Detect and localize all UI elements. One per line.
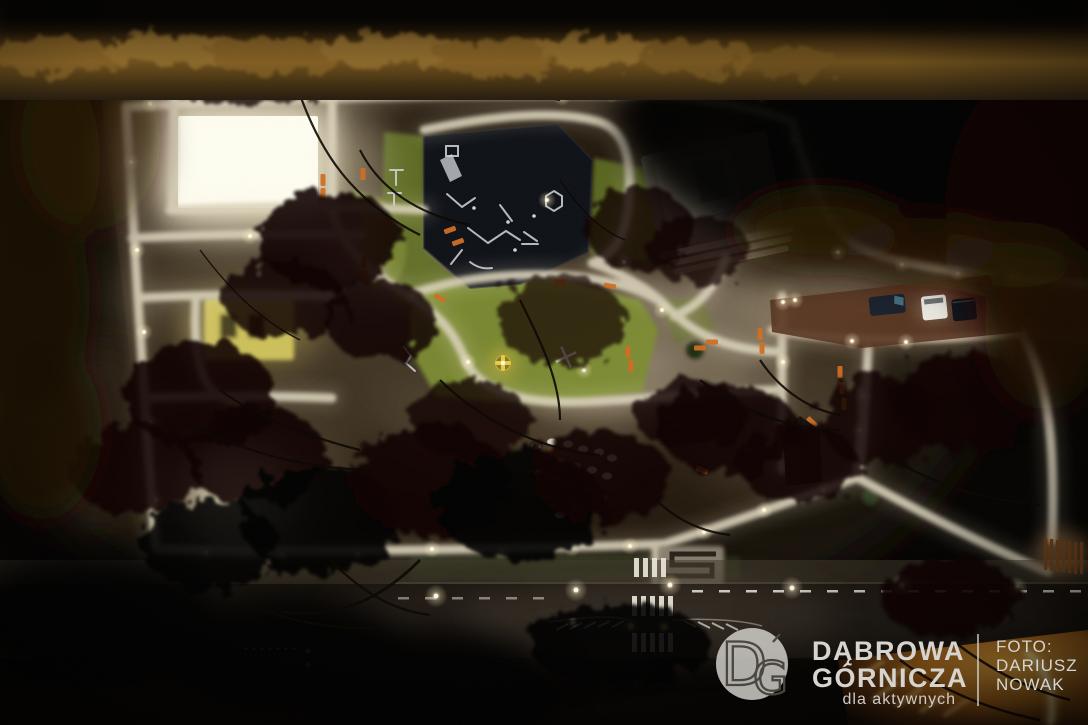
park-aerial-photo: D G DĄBROWA GÓRNICZA dla aktywnych FOTO:… [0, 0, 1088, 725]
watermark-credit-name1: DARIUSZ [996, 656, 1078, 675]
vignette [0, 0, 1088, 725]
watermark-brand-line1: DĄBROWA [812, 636, 965, 666]
watermark-brand-line2: GÓRNICZA [812, 662, 968, 693]
aerial-photo: D G DĄBROWA GÓRNICZA dla aktywnych FOTO:… [0, 0, 1088, 725]
watermark-credit-name2: NOWAK [996, 675, 1065, 694]
dg-logo-letter-g: G [753, 652, 788, 705]
watermark-credit-label: FOTO: [996, 637, 1053, 656]
watermark-tagline: dla aktywnych [843, 691, 957, 708]
dg-logo: D G [716, 628, 788, 705]
